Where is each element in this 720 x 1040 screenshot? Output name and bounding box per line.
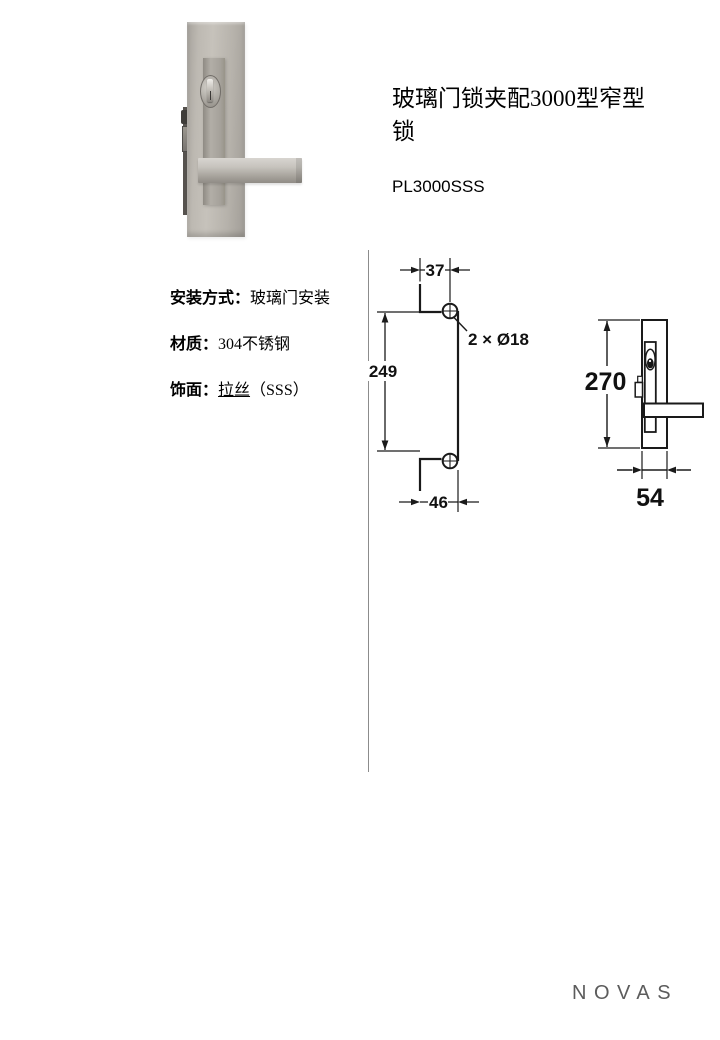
spec-row-finish: 饰面：拉丝（SSS） bbox=[170, 376, 330, 400]
holes-callout: 2 × Ø18 bbox=[468, 330, 529, 349]
lever-handle-end bbox=[296, 158, 302, 183]
side-view-drawing: 270 54 bbox=[570, 300, 720, 515]
brand-logo: NOVAS bbox=[572, 982, 678, 1005]
spec-list: 安装方式：玻璃门安装 材质：304不锈钢 饰面：拉丝（SSS） bbox=[170, 284, 330, 422]
dim-bottom-width: 46 bbox=[429, 493, 448, 512]
side-latch-nub bbox=[638, 376, 643, 382]
spec-label: 饰面： bbox=[170, 382, 218, 399]
keyway-slot bbox=[210, 91, 211, 100]
spec-label: 安装方式： bbox=[170, 290, 250, 307]
dim-height: 249 bbox=[369, 362, 397, 381]
dim-top-width: 37 bbox=[426, 261, 445, 280]
front-view-drawing: 37 249 46 2 × Ø18 bbox=[350, 248, 560, 523]
side-lever-handle bbox=[644, 404, 703, 418]
page-title: 玻璃门锁夹配3000型窄型锁 bbox=[392, 82, 654, 148]
dim-side-height: 270 bbox=[585, 368, 627, 396]
spec-value-underlined: 拉丝 bbox=[218, 382, 250, 399]
spec-row-material: 材质：304不锈钢 bbox=[170, 330, 330, 354]
spec-row-installation: 安装方式：玻璃门安装 bbox=[170, 284, 330, 308]
spec-value-suffix: （SSS） bbox=[250, 382, 309, 399]
spec-value: 304不锈钢 bbox=[218, 336, 290, 353]
lever-handle bbox=[198, 158, 302, 183]
spec-label: 材质： bbox=[170, 336, 218, 353]
spec-value: 玻璃门安装 bbox=[250, 290, 330, 307]
side-keyhole bbox=[647, 358, 654, 368]
product-photo bbox=[150, 15, 350, 245]
dim-side-width: 54 bbox=[636, 484, 664, 512]
side-latch-bolt bbox=[635, 383, 642, 398]
product-code: PL3000SSS bbox=[392, 177, 485, 197]
